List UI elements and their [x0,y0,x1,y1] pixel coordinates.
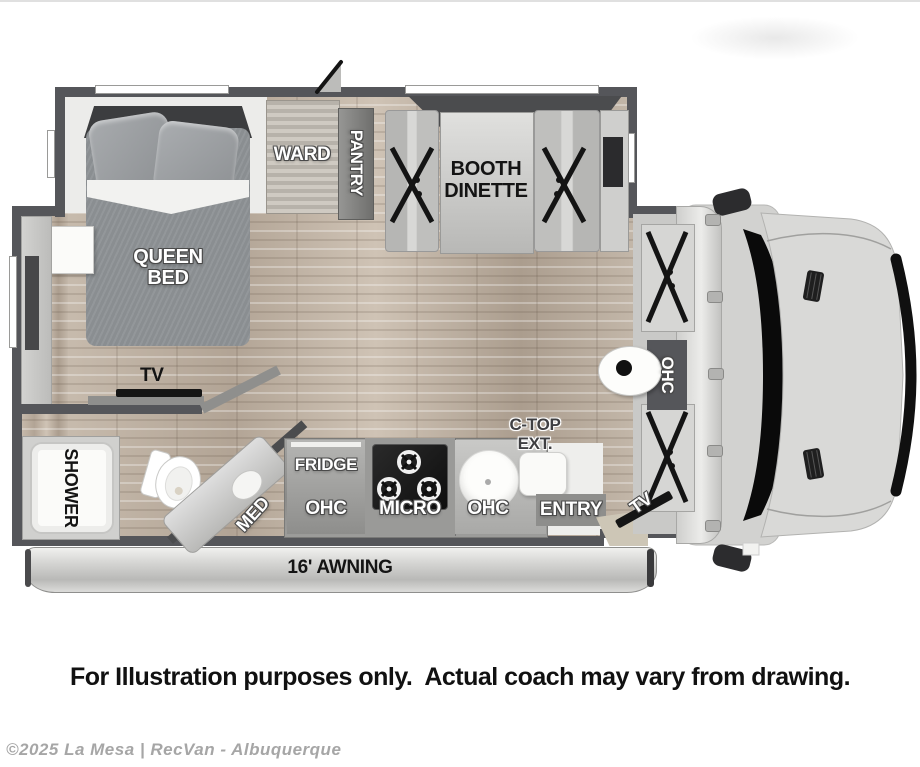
pedestal-table-dot [616,360,632,376]
sink-faucet-dot [485,479,491,485]
nightstand [48,226,94,274]
seatbelt-straps-right [542,146,586,224]
ohc-kitchen-right-label: OHC [458,499,518,519]
window-slide-left [47,130,55,178]
tv-shelf [88,396,204,405]
seatbelt-straps-left [390,146,434,224]
window-dinette-top [405,85,599,94]
fridge-shine [291,442,361,447]
cabover-clip-5 [705,520,721,532]
dealer-watermark: ©2025 La Mesa | RecVan - Albuquerque [6,740,341,760]
top-hairline [0,0,920,2]
ctop-ext-label: C-TOPEXT. [498,415,572,453]
window-rear-left [9,256,17,348]
ohc-cabover-label: OHC [658,340,676,410]
cabover-clip-4 [707,445,723,457]
dinette-wall-tv-icon [603,137,623,187]
rear-wardrobe-slot [25,256,39,350]
shower-label: SHOWER [60,446,80,530]
ctop-ext-panel [519,452,567,496]
micro-label: MICRO [361,499,459,519]
cabover-clip-1 [705,214,721,226]
ohc-kitchen-left-label: OHC [294,499,358,519]
bedroom-tv-label: TV [140,366,164,386]
bedroom-divider-wall [12,404,202,414]
wall-slide-left [55,87,65,217]
ward-label: WARD [264,145,340,165]
entry-label: ENTRY [536,500,606,520]
disclaimer-caption: For Illustration purposes only. Actual c… [0,663,920,692]
cabover-clip-3 [708,368,724,380]
booth-dinette-label: BOOTHDINETTE [438,158,534,202]
floorplan-image: 16' AWNING [0,0,920,767]
queen-bed-label: QUEENBED [98,247,238,289]
pantry-label: PANTRY [345,120,365,206]
roof-antenna-icon [314,58,344,94]
seatbelt-straps-cab-top [646,230,688,324]
fridge-label: FRIDGE [287,456,365,474]
window-bedroom-top [95,85,229,94]
cabover-clip-2 [707,291,723,303]
awning-label: 16' AWNING [25,558,655,578]
smudge [690,16,860,60]
bedroom-tv-icon [116,389,202,397]
cab-step-tab [743,543,759,555]
seatbelt-straps-cab-bottom [646,410,688,504]
